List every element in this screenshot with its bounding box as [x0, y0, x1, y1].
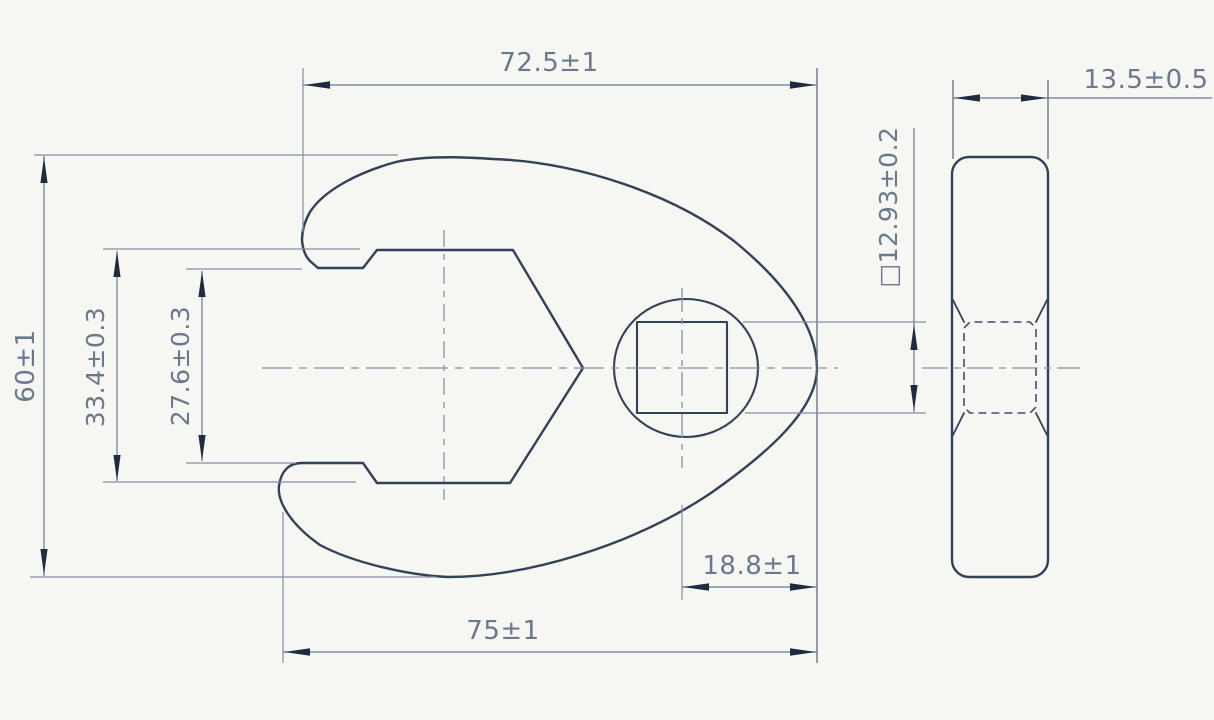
hex-chamfer-edge-bottom-right — [1036, 413, 1047, 435]
dimension-drive-center-to-edge: 18.8±1 — [682, 505, 817, 600]
dimension-square-drive: □12.93±0.2 — [743, 127, 926, 413]
wrench-body-outline — [279, 157, 817, 577]
crowfoot-wrench-drawing: 72.5±1 13.5±0.5 60±1 33.4±0.3 27.6±0.3 — [0, 0, 1214, 720]
hex-chamfer-edge-top-left — [953, 300, 964, 322]
technical-drawing-canvas: 72.5±1 13.5±0.5 60±1 33.4±0.3 27.6±0.3 — [0, 0, 1214, 720]
arrowhead-top — [40, 157, 47, 183]
arrowhead-bottom — [40, 549, 47, 575]
front-view — [262, 157, 838, 577]
arrowhead-right — [790, 583, 816, 591]
dimension-label: 13.5±0.5 — [1083, 65, 1208, 95]
dimension-label: 75±1 — [466, 616, 539, 646]
arrowhead-down — [910, 385, 917, 411]
dimension-label: 27.6±0.3 — [166, 306, 195, 426]
dimension-label: 60±1 — [11, 329, 41, 402]
arrowhead-right — [790, 648, 816, 656]
arrowhead-top — [198, 271, 205, 297]
dimension-jaw-width-inner: 27.6±0.3 — [166, 269, 302, 463]
dimension-overall-height: 60±1 — [11, 155, 436, 577]
dimension-side-thickness: 13.5±0.5 — [953, 65, 1212, 159]
dimension-label: 72.5±1 — [499, 48, 598, 78]
hex-chamfer-edge-top-right — [1036, 300, 1047, 322]
arrowhead-left — [284, 648, 310, 656]
arrowhead-right — [1021, 94, 1047, 101]
side-view — [922, 157, 1080, 577]
arrowhead-bottom — [113, 455, 120, 481]
arrowhead-bottom — [198, 435, 205, 461]
hex-chamfer-edge-bottom-left — [953, 413, 964, 435]
dimension-label: 33.4±0.3 — [81, 307, 110, 427]
arrowhead-left — [304, 81, 330, 89]
arrowhead-up — [910, 324, 917, 350]
dimension-label: 18.8±1 — [702, 551, 801, 581]
dimension-label: □12.93±0.2 — [874, 127, 903, 288]
arrowhead-left — [954, 94, 980, 101]
arrowhead-top — [113, 251, 120, 277]
arrowhead-right — [790, 81, 816, 89]
dimension-jaw-width-outer: 33.4±0.3 — [81, 249, 360, 482]
arrowhead-left — [683, 583, 709, 591]
side-profile-outline — [952, 157, 1048, 577]
